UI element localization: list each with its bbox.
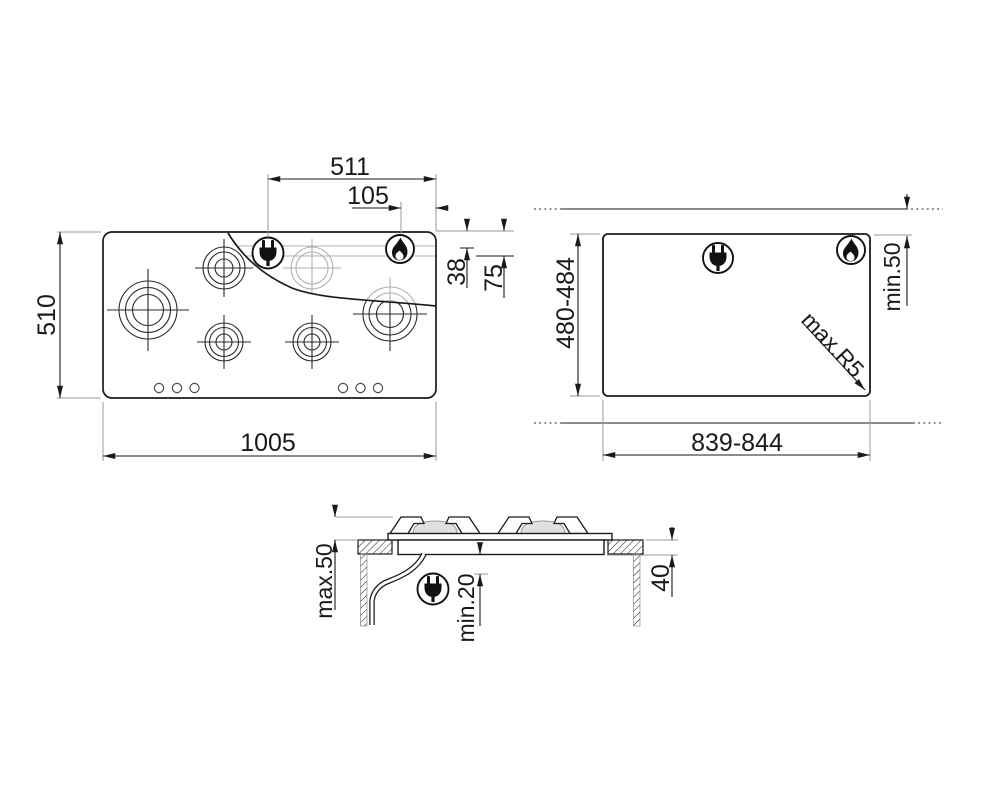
worktop-section-right (608, 540, 643, 554)
dim-label-max-height: max.50 (311, 543, 337, 618)
installation-diagram: 511 105 510 1005 38 75 (0, 0, 1000, 800)
hob-body-tub (398, 540, 604, 555)
hob-top-plate (388, 534, 612, 541)
dim-label-recess-depth: 40 (647, 564, 675, 592)
dim-label-gas-inset: 38 (443, 258, 471, 286)
dim-label-corner-radius: max.R5 (796, 307, 869, 383)
worktop-section-left (358, 540, 392, 554)
gas-flame-icon (837, 236, 865, 264)
dim-label-depth: 510 (33, 294, 61, 336)
dim-label-cutout-width: 839-844 (691, 429, 783, 457)
cabinet-wall-left (361, 554, 368, 626)
cabinet-wall-right (634, 554, 641, 626)
dim-label-edge-clearance: min.50 (879, 242, 905, 311)
dim-label-cutout-depth: 480-484 (552, 257, 580, 349)
installation-section-view: max.50 min.20 40 (311, 505, 678, 643)
worktop-edge-lines (534, 209, 943, 423)
gas-flame-icon (386, 235, 414, 263)
dim-label-plug-offset: 511 (330, 153, 370, 181)
dim-label-min-clearance: min.20 (453, 573, 479, 642)
installation-diagram-page: 511 105 510 1005 38 75 (0, 0, 1000, 800)
dim-label-plug-inset: 75 (480, 264, 508, 292)
dim-label-gas-offset: 105 (347, 182, 389, 210)
dim-label-width: 1005 (240, 429, 296, 457)
worktop-cutout-view: 480-484 839-844 min.50 max.R5 (534, 194, 943, 461)
power-plug-icon (253, 238, 284, 269)
cutout-outline (603, 234, 870, 396)
power-plug-icon (418, 574, 449, 605)
hob-top-view: 511 105 510 1005 38 75 (33, 153, 514, 461)
power-plug-icon (703, 243, 733, 273)
